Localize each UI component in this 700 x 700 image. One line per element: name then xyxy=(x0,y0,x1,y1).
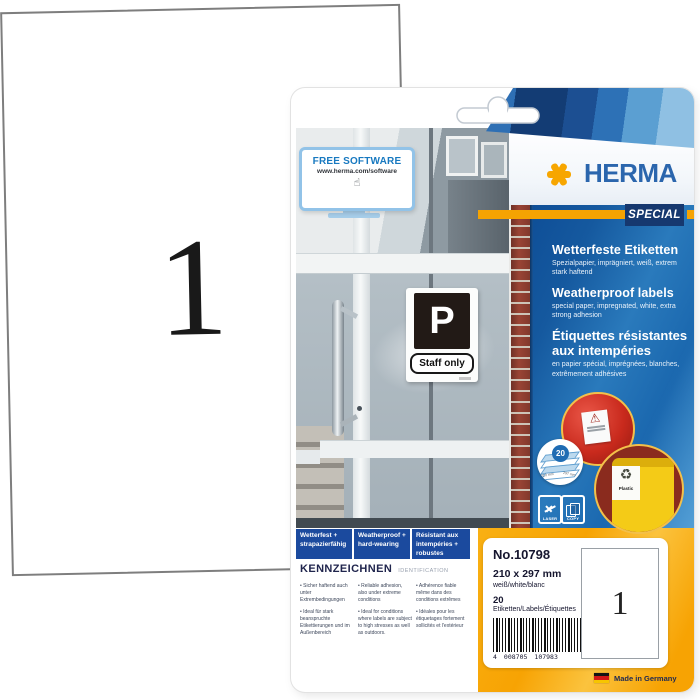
special-tag: SPECIAL xyxy=(625,204,684,226)
kick-plate xyxy=(296,518,509,528)
sheet-count: 20 xyxy=(552,445,569,462)
door-rail xyxy=(320,440,509,458)
usage-photo-recycle-bin: ♻ Plastic xyxy=(594,444,684,534)
sheet-count-badge: 20 210 mm 297 mm xyxy=(537,439,583,485)
ident-bullet: Sicher haftend auch unter Extrembedingun… xyxy=(300,583,354,604)
identification-subheading: IDENTIFICATION xyxy=(398,568,448,574)
free-software-url: www.herma.com/software xyxy=(302,168,412,175)
feature-box-fr: Résistant aux intempéries + robustes xyxy=(412,529,470,559)
herma-mini-mark xyxy=(459,377,471,380)
feature-box-en: Weatherproof + hard-wearing xyxy=(354,529,410,559)
ident-bullet: Reliable adhesion, also under extreme co… xyxy=(358,583,412,604)
made-in-germany: Made in Germany xyxy=(594,673,677,683)
special-stripe-cap xyxy=(687,210,694,219)
identification-heading: KENNZEICHNEN xyxy=(300,563,392,575)
hang-hole xyxy=(454,92,542,130)
barcode-digit-group: 008705 xyxy=(504,653,527,661)
hand-cursor-icon: ☝ xyxy=(302,176,412,189)
window-reflection xyxy=(481,142,507,178)
layout-preview: 1 xyxy=(581,548,659,659)
barcode-digit-group: 4 xyxy=(493,653,497,661)
product-package: FREE SOFTWARE www.herma.com/software ☝ P… xyxy=(291,88,694,692)
recycle-icon: ♻ xyxy=(612,466,640,486)
parking-sign: P xyxy=(414,293,470,349)
copy-icon xyxy=(566,503,580,515)
germany-flag-icon xyxy=(594,673,609,683)
product-spec-panel: No.10798 210 x 297 mm weiß/white/blanc 2… xyxy=(483,538,668,668)
asterisk-icon xyxy=(547,162,571,186)
bin-label: ♻ Plastic xyxy=(612,466,640,500)
staff-only-sign: Staff only xyxy=(410,353,474,374)
brand-name: HERMA xyxy=(584,158,677,189)
door-frame-horizontal xyxy=(296,253,509,274)
monitor-stand-base xyxy=(328,213,380,218)
sheet-label-count: 1 xyxy=(157,218,230,359)
special-band: SPECIAL xyxy=(478,204,694,226)
laser-label: LASER xyxy=(543,516,558,521)
barcode xyxy=(493,618,581,652)
window-reflection xyxy=(446,136,478,176)
title-fr: Étiquettes résistantes aux intempéries xyxy=(552,329,690,358)
door-photo: FREE SOFTWARE www.herma.com/software ☝ P… xyxy=(296,128,509,528)
subtitle-de: Spezialpapier, imprägniert, weiß, extrem… xyxy=(552,259,690,277)
ident-bullet: Adhérence fiable même dans des condition… xyxy=(416,583,470,604)
copy-compatibility-badge: COPY xyxy=(561,495,585,524)
bin-label-text: Plastic xyxy=(612,486,640,491)
layout-preview-count: 1 xyxy=(612,585,629,623)
free-software-badge: FREE SOFTWARE www.herma.com/software ☝ xyxy=(299,147,415,211)
identification-section: KENNZEICHNEN IDENTIFICATION Sicher hafte… xyxy=(296,563,474,642)
ident-bullet: Ideal for conditions where labels are su… xyxy=(358,609,412,637)
laser-icon xyxy=(543,503,557,515)
ident-col-de: Sicher haftend auch unter Extrembedingun… xyxy=(300,583,354,642)
subtitle-fr: en papier spécial, imprégnées, blanches,… xyxy=(552,360,690,378)
parking-staff-label: P Staff only xyxy=(406,288,478,382)
barcode-digit-group: 107983 xyxy=(534,653,557,661)
free-software-title: FREE SOFTWARE xyxy=(302,156,412,167)
laser-compatibility-badge: LASER xyxy=(538,495,562,524)
warning-label: ⚠ xyxy=(581,410,611,445)
special-label: SPECIAL xyxy=(628,209,681,221)
special-stripe xyxy=(478,210,625,219)
ident-col-en: Reliable adhesion, also under extreme co… xyxy=(358,583,412,642)
herma-logo: HERMA xyxy=(547,158,677,189)
made-in-text: Made in Germany xyxy=(614,674,677,683)
title-en: Weatherproof labels xyxy=(552,286,690,300)
subtitle-en: special paper, impregnated, white, extra… xyxy=(552,302,690,320)
ident-bullet: Ideal für stark beanspruchte Etikettieru… xyxy=(300,609,354,637)
title-de: Wetterfeste Etiketten xyxy=(552,243,690,257)
ident-bullet: Idéales pour les étiquetages fortement s… xyxy=(416,609,470,630)
door-lock xyxy=(357,406,362,411)
feature-box-de: Wetterfest + strapazierfähig xyxy=(296,529,352,559)
door-rail xyxy=(296,450,320,464)
ident-col-fr: Adhérence fiable même dans des condition… xyxy=(416,583,470,642)
door-handle xyxy=(332,300,344,436)
